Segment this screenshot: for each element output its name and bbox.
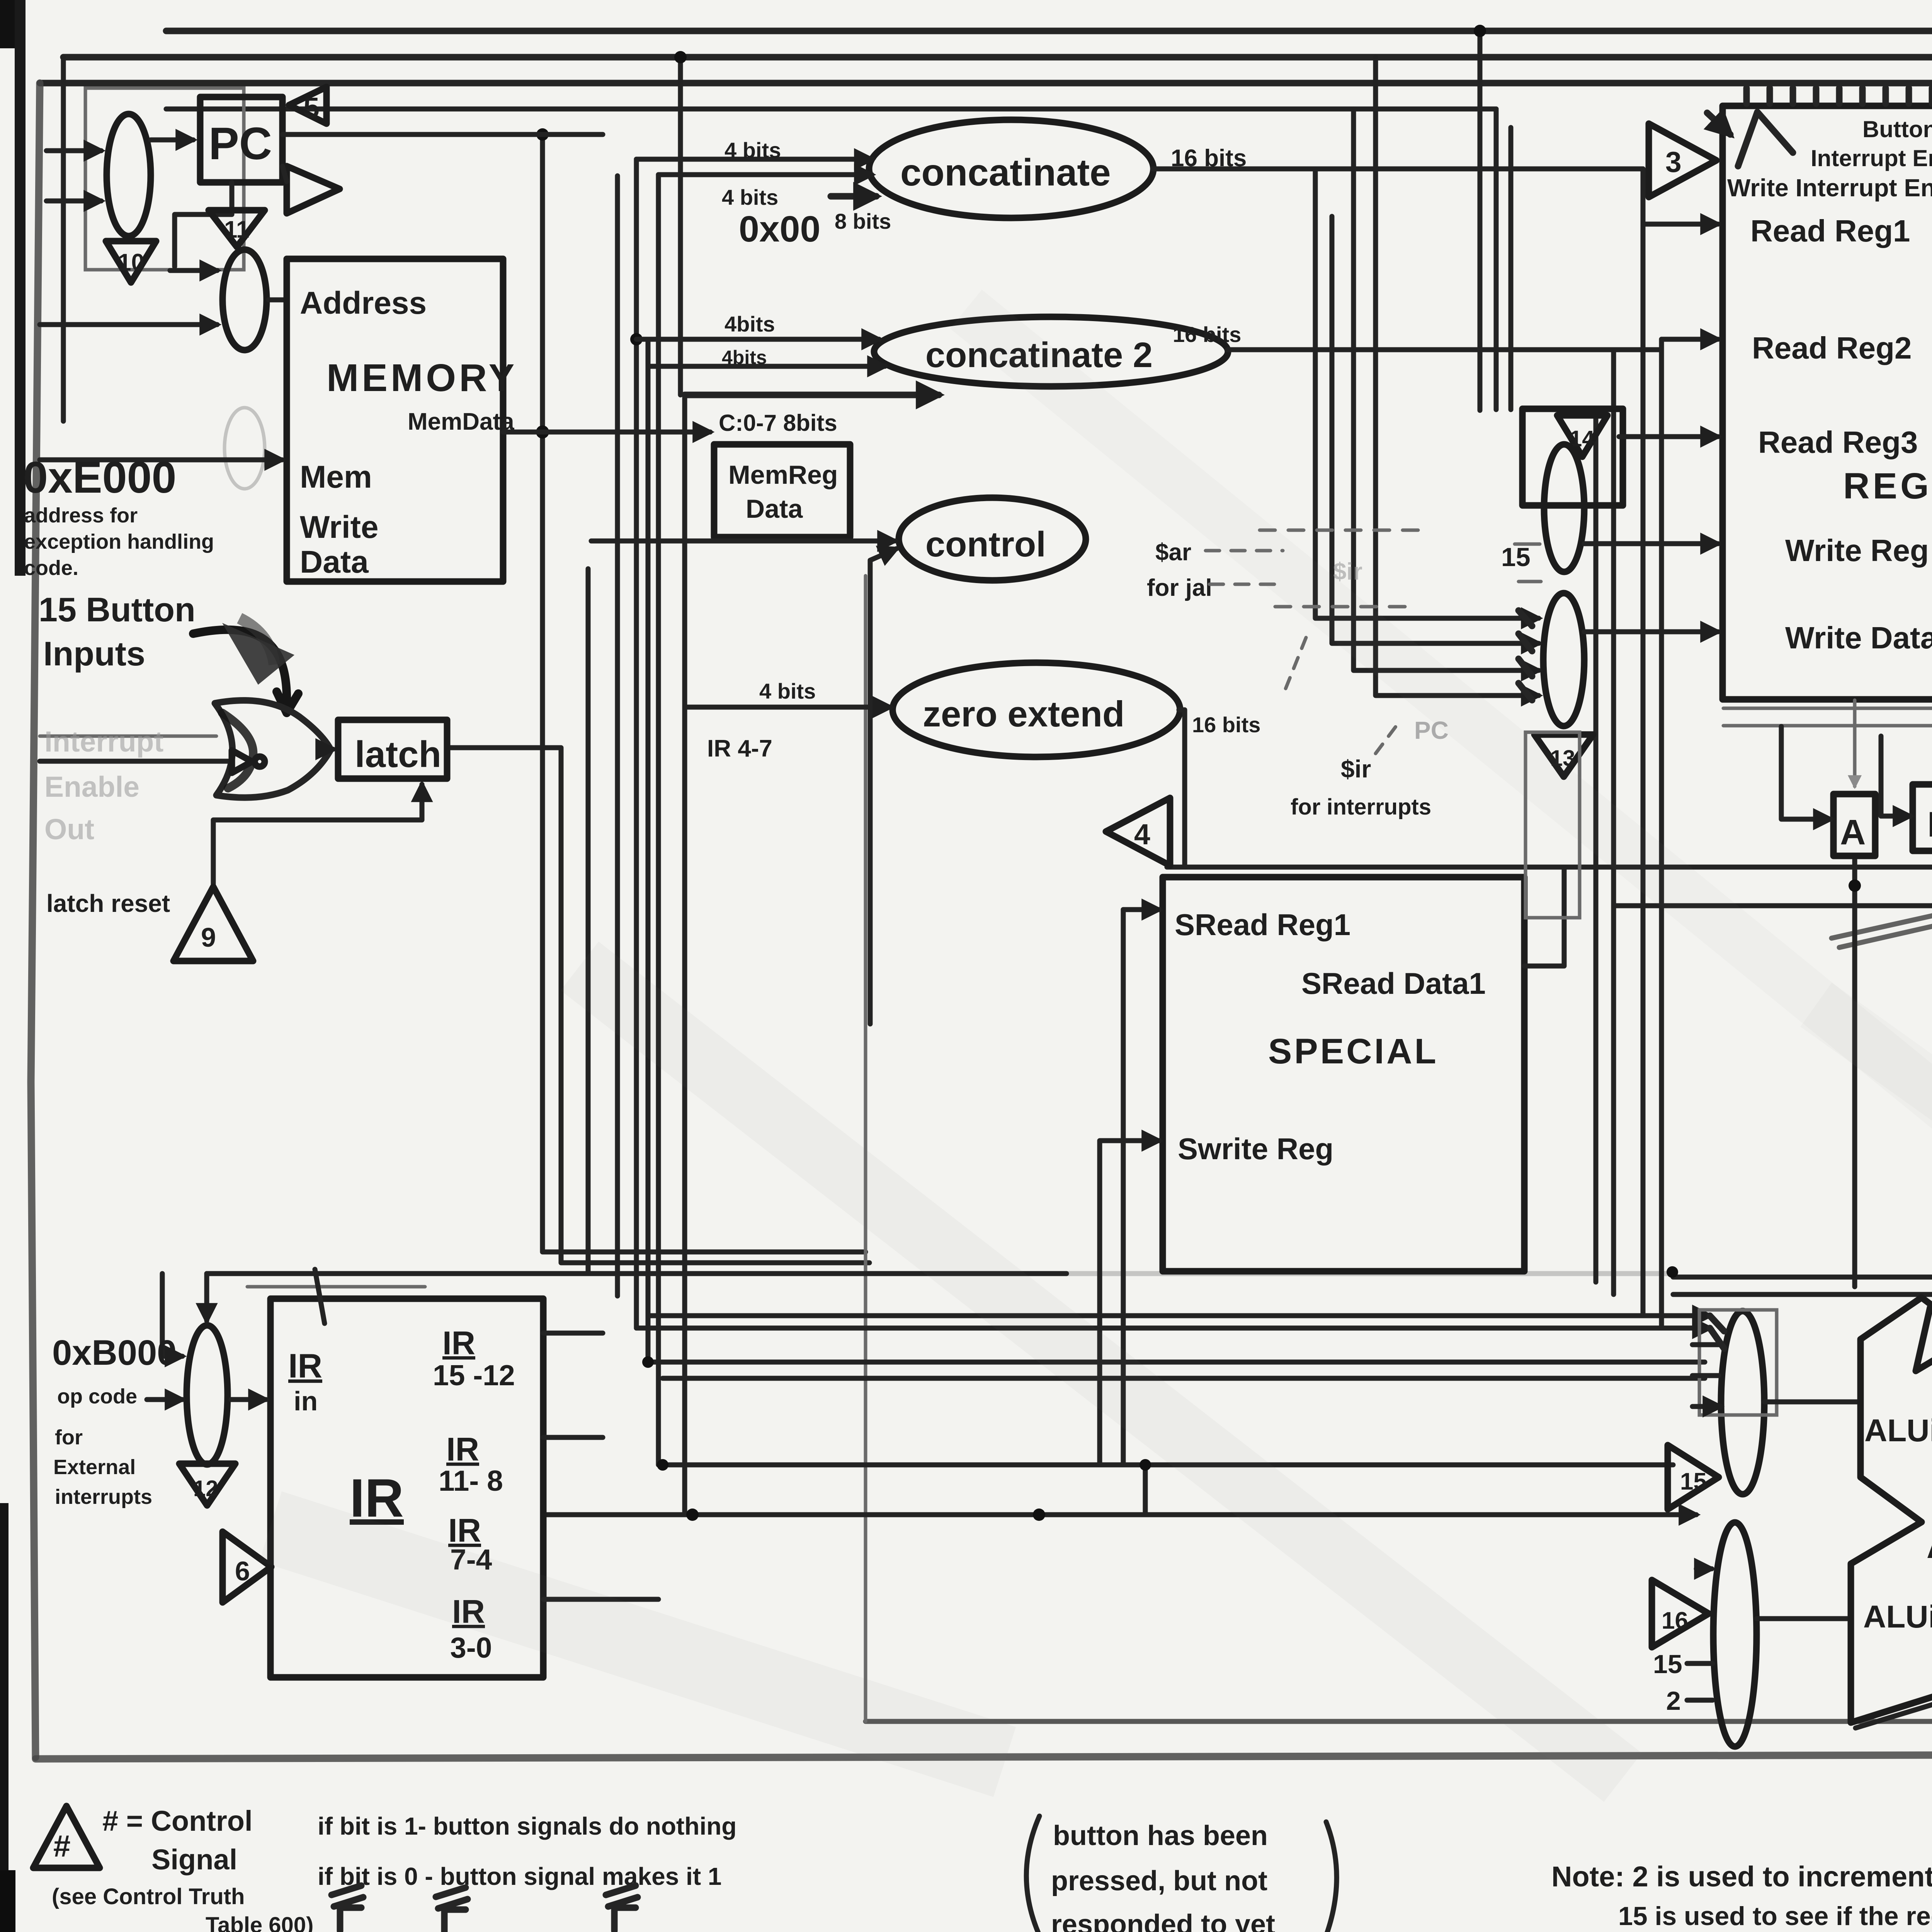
svg-text:Signal: Signal — [151, 1844, 237, 1876]
svg-text:latch reset: latch reset — [46, 889, 170, 917]
svg-text:concatinate: concatinate — [900, 151, 1111, 194]
svg-text:B: B — [1927, 805, 1932, 844]
svg-text:MEMORY: MEMORY — [327, 356, 517, 400]
svg-text:$ir: $ir — [1341, 755, 1371, 783]
svg-text:16 bits: 16 bits — [1173, 322, 1241, 347]
svg-text:IR: IR — [446, 1431, 479, 1468]
svg-text:0x00: 0x00 — [739, 209, 820, 250]
svg-text:15 -12: 15 -12 — [433, 1359, 515, 1391]
svg-text:15 is used to see if the regis: 15 is used to see if the register — [1618, 1901, 1932, 1931]
svg-text:Write Data: Write Data — [1785, 621, 1932, 655]
svg-text:(see Control Truth: (see Control Truth — [52, 1884, 245, 1909]
svg-text:Interrupt: Interrupt — [44, 725, 163, 758]
svg-text:4 bits: 4 bits — [759, 679, 816, 703]
svg-text:15: 15 — [1680, 1468, 1707, 1495]
svg-text:Interrupt Enable: Interrupt Enable — [1811, 145, 1932, 171]
svg-text:4 bits: 4 bits — [724, 138, 781, 162]
svg-text:2: 2 — [1666, 1686, 1681, 1716]
svg-text:Address: Address — [300, 286, 427, 321]
svg-text:ALU: ALU — [1926, 1515, 1932, 1568]
svg-text:latch: latch — [355, 734, 441, 775]
svg-text:4bits: 4bits — [724, 312, 775, 336]
svg-text:Read Reg2: Read Reg2 — [1752, 331, 1912, 365]
svg-text:Inputs: Inputs — [43, 634, 145, 673]
svg-text:Mem: Mem — [300, 459, 372, 495]
svg-text:10: 10 — [118, 249, 145, 276]
svg-text:Write Interrupt Enable: Write Interrupt Enable — [1727, 174, 1932, 202]
svg-text:control: control — [925, 525, 1046, 564]
svg-text:SPECIAL: SPECIAL — [1268, 1032, 1439, 1071]
svg-text:in: in — [294, 1386, 318, 1416]
svg-text:4 bits: 4 bits — [722, 185, 778, 209]
svg-text:External: External — [53, 1456, 136, 1479]
svg-text:Table 600): Table 600) — [206, 1913, 313, 1932]
svg-text:#: # — [53, 1829, 71, 1863]
svg-text:Enable: Enable — [44, 770, 139, 803]
svg-text:9: 9 — [201, 922, 216, 952]
svg-text:IR: IR — [288, 1347, 322, 1385]
svg-text:11- 8: 11- 8 — [439, 1464, 503, 1497]
svg-text:MemData: MemData — [408, 408, 514, 435]
svg-text:button has been: button has been — [1053, 1820, 1268, 1851]
svg-text:16 bits: 16 bits — [1192, 713, 1260, 737]
svg-text:if bit is 0 - button signal ma: if bit is 0 - button signal makes it 1 — [318, 1862, 722, 1890]
svg-text:for interrupts: for interrupts — [1291, 794, 1431, 820]
svg-text:12: 12 — [193, 1476, 218, 1501]
svg-text:3-0: 3-0 — [450, 1631, 492, 1664]
svg-text:15 Button: 15 Button — [39, 590, 196, 629]
svg-text:pressed, but not: pressed, but not — [1051, 1866, 1267, 1896]
svg-text:15: 15 — [1653, 1650, 1682, 1679]
svg-text:Swrite Reg: Swrite Reg — [1178, 1132, 1333, 1166]
svg-text:6: 6 — [235, 1556, 250, 1586]
svg-text:IR: IR — [442, 1325, 475, 1362]
svg-text:Note: 2 is used to increment P: Note: 2 is used to increment PC — [1551, 1861, 1932, 1893]
svg-text:11: 11 — [224, 216, 250, 243]
svg-text:$ar: $ar — [1155, 539, 1191, 566]
svg-text:3: 3 — [1665, 146, 1682, 178]
svg-text:exception handling: exception handling — [24, 530, 214, 553]
svg-text:ALUin1: ALUin1 — [1864, 1413, 1932, 1448]
svg-text:16: 16 — [1662, 1607, 1688, 1634]
svg-text:C:0-7 8bits: C:0-7 8bits — [719, 410, 837, 436]
svg-text:for: for — [55, 1426, 83, 1449]
svg-text:8 bits: 8 bits — [835, 209, 891, 233]
svg-text:4: 4 — [1134, 818, 1150, 850]
svg-text:REGISTER: REGISTER — [1843, 466, 1932, 507]
svg-text:Read Reg3: Read Reg3 — [1758, 425, 1918, 459]
svg-text:PC: PC — [209, 118, 272, 169]
svg-text:Read Reg1: Read Reg1 — [1750, 214, 1910, 248]
svg-text:for jal: for jal — [1147, 575, 1212, 601]
svg-text:Write: Write — [300, 510, 379, 545]
svg-text:MemReg: MemReg — [728, 460, 838, 490]
svg-text:Data: Data — [746, 494, 803, 524]
svg-text:Out: Out — [44, 813, 94, 845]
svg-text:A: A — [1840, 813, 1866, 852]
svg-text:address for: address for — [24, 504, 138, 527]
svg-text:Button Reg Inputs: Button Reg Inputs — [1862, 116, 1932, 142]
svg-text:Write Reg: Write Reg — [1785, 533, 1929, 568]
svg-text:Data: Data — [300, 544, 369, 580]
svg-text:SRead Reg1: SRead Reg1 — [1175, 908, 1350, 942]
svg-text:responded to yet: responded to yet — [1051, 1909, 1275, 1932]
svg-text:ALUin2: ALUin2 — [1863, 1599, 1932, 1634]
svg-text:if bit is 1- button signals do: if bit is 1- button signals do nothing — [318, 1812, 736, 1840]
svg-text:0xB000: 0xB000 — [52, 1333, 177, 1372]
svg-text:4bits: 4bits — [722, 347, 767, 368]
svg-text:15: 15 — [1501, 543, 1531, 572]
svg-text:0xE000: 0xE000 — [23, 453, 177, 502]
svg-text:5: 5 — [303, 92, 320, 124]
svg-text:SRead Data1: SRead Data1 — [1301, 966, 1486, 1000]
svg-text:code.: code. — [24, 556, 78, 580]
svg-text:interrupts: interrupts — [55, 1485, 152, 1509]
svg-text:op code: op code — [57, 1385, 137, 1408]
svg-text:# = Control: # = Control — [102, 1805, 253, 1837]
svg-text:zero extend: zero extend — [923, 694, 1124, 734]
svg-text:IR 4-7: IR 4-7 — [707, 735, 772, 762]
